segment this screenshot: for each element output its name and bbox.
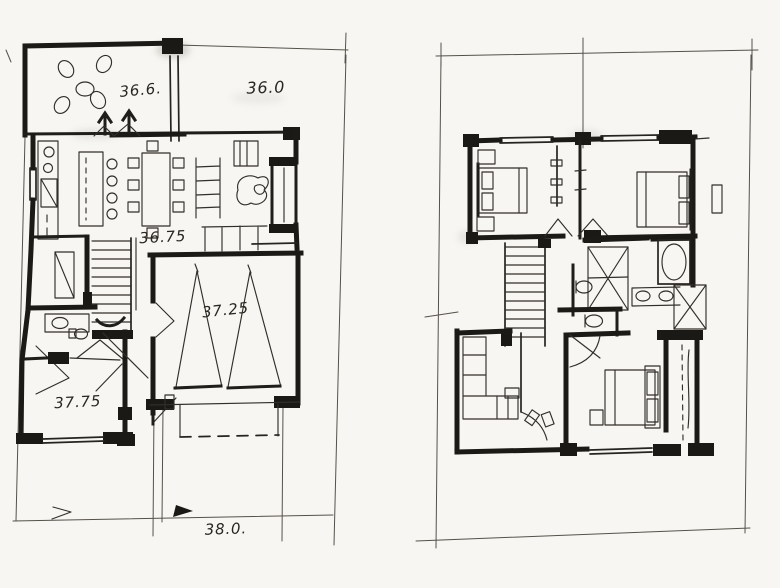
wall-block <box>103 432 133 444</box>
boundary-tick-bottom <box>282 406 283 541</box>
dining-set <box>128 141 184 238</box>
door-swings-2 <box>103 333 176 424</box>
staircase-ground <box>33 236 136 339</box>
left-window <box>30 168 36 200</box>
side-marks <box>712 185 722 213</box>
patio-bottom-wall-dark <box>112 134 184 135</box>
left-wall <box>28 135 33 310</box>
patio-screen <box>170 56 179 141</box>
dresser <box>477 217 494 231</box>
boundary-ticks <box>441 39 752 70</box>
bedroom-bottom-wall <box>470 236 563 238</box>
up-arrows <box>99 111 135 134</box>
survey-marker-open <box>52 507 71 519</box>
chair <box>51 94 73 117</box>
elevation-label-patio: 36.6. <box>119 79 163 101</box>
bed <box>479 168 527 213</box>
island-outline <box>79 152 103 226</box>
boundary-left <box>436 56 441 548</box>
chair <box>87 89 108 112</box>
cupboard-x <box>674 285 706 329</box>
wall-corner-block <box>659 130 692 144</box>
chair <box>128 180 139 190</box>
wall-block <box>118 407 132 420</box>
powder-top-wall <box>30 307 95 308</box>
stool <box>107 193 117 203</box>
stool <box>107 159 117 169</box>
pillow <box>482 172 493 189</box>
bathroom-suite <box>560 238 706 367</box>
bathtub <box>662 244 686 280</box>
elevation-label-street: 38.0. <box>204 519 247 538</box>
wall-block <box>653 444 681 456</box>
organic-coffee-table <box>237 176 268 205</box>
sink <box>659 291 673 301</box>
wardrobe-top-block <box>657 330 703 340</box>
nightstand <box>590 410 603 425</box>
elevation-label-garage: 37.25 <box>201 299 250 322</box>
chair <box>173 202 184 212</box>
wardrobe-rail-dashed <box>682 345 683 440</box>
stair-treads <box>92 241 131 322</box>
bath-mid-wall <box>560 309 620 310</box>
bath-bottom-wall <box>566 333 628 335</box>
door-arc <box>570 336 600 367</box>
chair <box>173 180 184 190</box>
pillow <box>647 372 658 395</box>
wall-block <box>48 352 69 364</box>
floor-plan-sketch: 36.6. 36.0 36.75 37.25 37.75 38.0. <box>0 0 780 588</box>
l-shaped-sofa <box>463 337 518 419</box>
wall-corner-block <box>162 38 183 54</box>
car-markers <box>175 264 281 388</box>
bedroom-bottom-right <box>560 330 714 456</box>
powder-room <box>30 307 95 394</box>
kitchen-island <box>79 152 117 226</box>
upper-floor-plan <box>416 38 758 548</box>
ground-floor-plan: 36.6. 36.0 36.75 37.25 37.75 38.0. <box>6 33 348 545</box>
pillow <box>482 193 493 210</box>
landing-wall <box>33 236 87 237</box>
car-triangles <box>176 264 281 387</box>
boundary-right <box>334 55 346 545</box>
linen-cupboard-x <box>588 247 628 310</box>
bench-railing <box>202 226 267 251</box>
wall-block <box>560 443 577 456</box>
tub-surround <box>658 240 690 284</box>
stair-treads <box>505 247 545 337</box>
sink <box>44 147 54 157</box>
wall-block <box>16 433 43 444</box>
wall-block <box>688 443 714 456</box>
upper-exterior-walls <box>463 130 709 239</box>
window-bottom <box>590 448 652 454</box>
door-arc <box>521 412 547 440</box>
wall <box>24 358 47 359</box>
elevation-label-living: 36.75 <box>139 227 187 247</box>
door-swing <box>156 303 174 337</box>
hall-wall <box>252 243 297 244</box>
stool <box>107 176 117 186</box>
closet-diagonal <box>55 252 74 298</box>
boundary-top <box>177 45 348 50</box>
floor-plan-sketch-page: 36.6. 36.0 36.75 37.25 37.75 38.0. <box>0 0 780 588</box>
living-dining-kitchen <box>28 127 300 310</box>
survey-marker-solid <box>173 505 193 517</box>
stool <box>107 209 117 219</box>
top-wall <box>182 132 298 133</box>
wall-block <box>83 292 92 306</box>
wardrobe-squiggle <box>688 350 689 428</box>
chair <box>147 141 158 151</box>
left-wall <box>21 310 28 441</box>
left-tick <box>425 312 458 317</box>
dining-table <box>142 153 170 226</box>
boundary-bottom <box>416 528 750 541</box>
toilet <box>576 281 592 293</box>
chair <box>128 158 139 168</box>
chair <box>128 202 139 212</box>
cooktop <box>44 164 53 173</box>
side-table <box>478 150 495 164</box>
patio-table-and-chairs <box>51 53 114 117</box>
bedroom-top-left <box>466 150 563 244</box>
driveway-edge-lines <box>153 408 163 536</box>
boundary-top <box>436 50 758 56</box>
stair-cap-top <box>538 239 551 248</box>
chair <box>93 53 114 76</box>
elevation-label-lower-room: 37.75 <box>54 392 102 412</box>
wall-block <box>466 232 478 244</box>
car-base-lines <box>175 386 280 388</box>
closet-top-middle <box>545 141 608 238</box>
garage-door-dashed <box>180 435 279 437</box>
fireplace-cap-bottom <box>269 224 297 233</box>
garage-top-wall <box>150 253 301 255</box>
fireplace-cap-top <box>269 157 297 166</box>
sink <box>636 291 650 301</box>
elevation-label-front-yard: 36.0 <box>246 77 285 97</box>
boundary-right <box>745 55 751 533</box>
door-swing <box>570 335 600 358</box>
garage <box>146 253 301 437</box>
footstool <box>541 412 554 427</box>
wall-corner-block <box>575 132 591 145</box>
pillow <box>647 399 658 422</box>
toilet <box>586 315 603 327</box>
door-jambs <box>180 404 278 437</box>
chair <box>173 158 184 168</box>
shelf-unit <box>196 158 220 218</box>
fireplace-unit <box>269 157 297 233</box>
chair <box>55 58 77 81</box>
top-wall <box>457 331 510 333</box>
corner-tick <box>6 50 11 62</box>
armchair-outline <box>234 141 258 166</box>
armchair-lines <box>240 141 247 166</box>
kitchen-counter <box>38 141 58 239</box>
sink <box>52 318 68 329</box>
window-bottom <box>43 437 104 443</box>
armchair <box>234 141 258 166</box>
